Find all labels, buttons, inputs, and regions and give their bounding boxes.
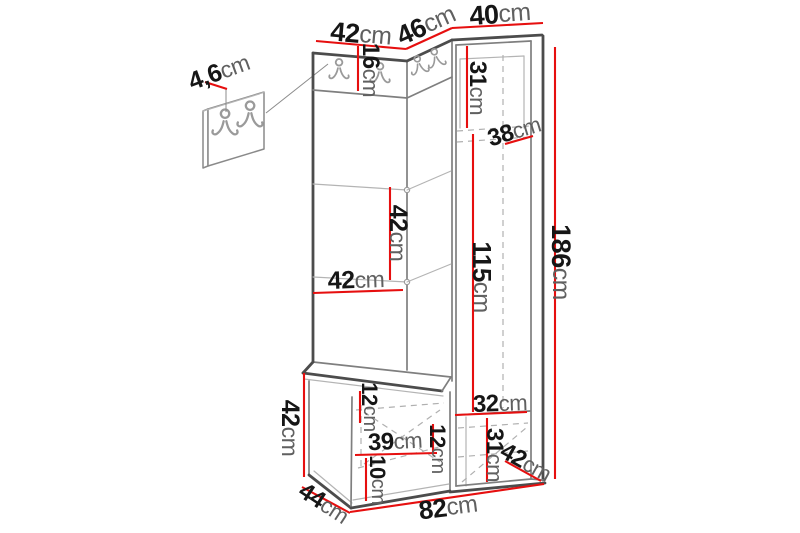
- dim-niche-depth: 38cm: [484, 110, 544, 152]
- dimension-label: 40cm: [468, 0, 531, 31]
- dimension-label: 32cm: [472, 389, 527, 418]
- coat-hook-icon: [408, 54, 429, 75]
- dimension-label: 82cm: [417, 489, 479, 526]
- dim-lower-shelf-width: 32cm: [455, 389, 528, 418]
- dim-inner-height: 115cm: [467, 134, 497, 412]
- dim-seat-height: 12cm: [358, 382, 383, 431]
- pointer-line: [266, 64, 328, 113]
- dim-bench-depth: 44cm: [294, 477, 354, 529]
- dim-bench-inner-width: 39cm: [355, 426, 437, 456]
- dim-top-width-middle: 46cm: [392, 0, 460, 51]
- dimensions: 42cm 46cm 40cm 4,6cm 16cm 31cm 38cm: [185, 0, 576, 529]
- dimension-label: 4,6cm: [185, 48, 254, 96]
- dim-plinth-height: 10cm: [366, 455, 391, 504]
- dimension-label: 44cm: [294, 477, 354, 529]
- dim-bench-inner-height: 12cm: [426, 424, 451, 474]
- dimension-label: 31cm: [465, 61, 492, 115]
- dimension-label: 16cm: [358, 43, 385, 97]
- diagram-canvas: 42cm 46cm 40cm 4,6cm 16cm 31cm 38cm: [0, 0, 800, 533]
- dim-top-width-right: 40cm: [452, 0, 543, 31]
- dimension-label: 42cm: [276, 400, 304, 456]
- coat-hook-icon: [329, 59, 348, 78]
- dim-wall-panel-depth: 4,6cm: [185, 48, 254, 96]
- dimension-label: 46cm: [392, 0, 460, 51]
- dimension-label: 186cm: [546, 224, 576, 300]
- dimension-label: 12cm: [426, 424, 451, 473]
- dim-total-height: 186cm: [546, 47, 576, 479]
- dimension-label: 42cm: [327, 265, 384, 295]
- dim-hook-strip-height: 16cm: [358, 43, 385, 97]
- angled-panel: [407, 40, 452, 381]
- furniture-dimension-diagram: 42cm 46cm 40cm 4,6cm 16cm 31cm 38cm: [0, 0, 800, 533]
- dimension-label: 12cm: [358, 382, 383, 431]
- dimension-label: 115cm: [467, 241, 497, 312]
- dimension-label: 10cm: [366, 455, 391, 504]
- dimension-label: 39cm: [367, 426, 422, 456]
- dimension-label: 38cm: [484, 110, 544, 152]
- dimension-label: 42cm: [384, 205, 412, 261]
- wall-hook-panel: [203, 88, 264, 168]
- dim-bench-height: 42cm: [276, 373, 304, 477]
